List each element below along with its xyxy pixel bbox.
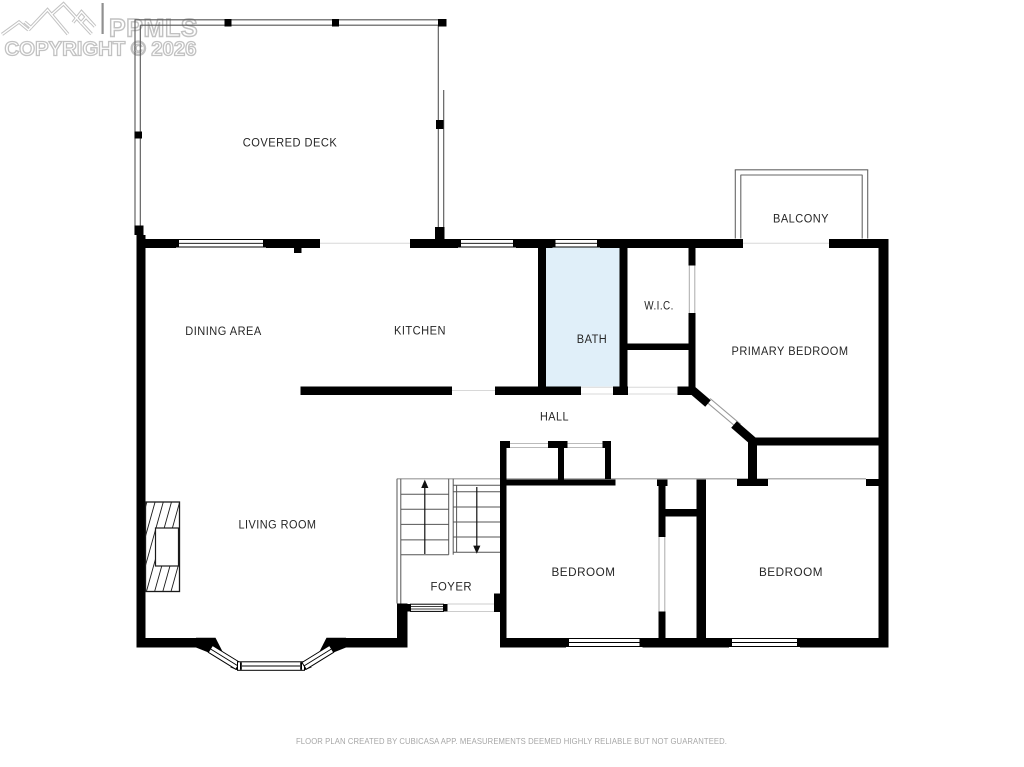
svg-text:KITCHEN: KITCHEN (394, 326, 446, 338)
svg-text:W.I.C.: W.I.C. (644, 300, 674, 312)
svg-text:FLOOR PLAN CREATED BY CUBICASA: FLOOR PLAN CREATED BY CUBICASA APP. MEAS… (296, 736, 727, 746)
svg-text:DINING AREA: DINING AREA (185, 326, 262, 338)
svg-text:PRIMARY BEDROOM: PRIMARY BEDROOM (732, 346, 849, 358)
svg-text:COVERED DECK: COVERED DECK (243, 138, 338, 150)
svg-text:BATH: BATH (577, 334, 608, 346)
svg-text:LIVING ROOM: LIVING ROOM (239, 520, 317, 532)
svg-text:HALL: HALL (540, 412, 569, 424)
svg-text:BALCONY: BALCONY (773, 213, 829, 225)
svg-text:BEDROOM: BEDROOM (759, 567, 823, 579)
svg-text:BEDROOM: BEDROOM (552, 567, 616, 579)
svg-text:FOYER: FOYER (431, 582, 473, 594)
svg-text:COPYRIGHT © 2026: COPYRIGHT © 2026 (5, 38, 197, 61)
